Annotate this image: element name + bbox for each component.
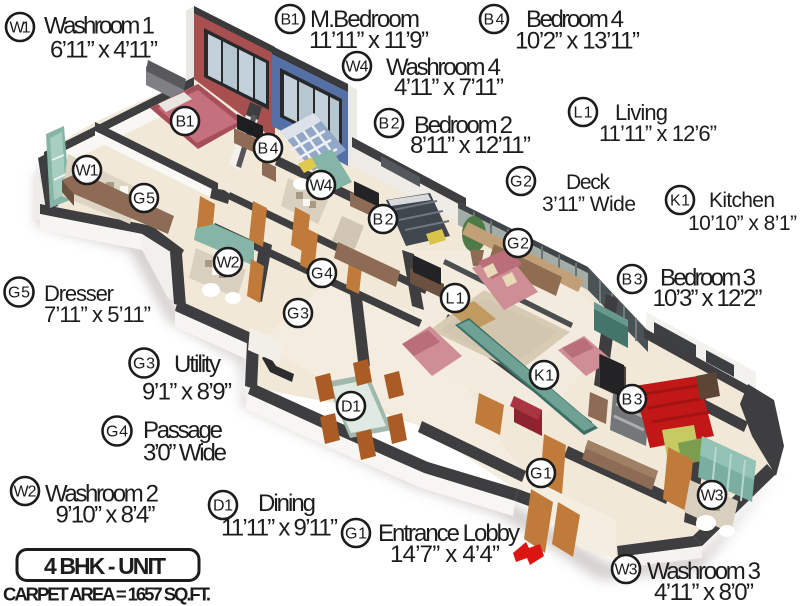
svg-text:G1: G1 <box>530 466 552 483</box>
svg-text:W2: W2 <box>217 255 240 272</box>
svg-text:6’11” x 4’11”: 6’11” x 4’11” <box>50 37 158 64</box>
svg-text:B2: B2 <box>379 116 400 133</box>
svg-text:D1: D1 <box>341 399 361 416</box>
svg-text:W4: W4 <box>346 59 369 76</box>
svg-text:10’10” x 8’1”: 10’10” x 8’1” <box>688 212 797 235</box>
svg-text:W4: W4 <box>310 178 333 195</box>
svg-text:3’0” Wide: 3’0” Wide <box>143 440 227 467</box>
svg-text:B4: B4 <box>258 141 279 158</box>
svg-text:W1: W1 <box>10 20 31 37</box>
svg-text:4 BHK - UNIT: 4 BHK - UNIT <box>44 553 166 579</box>
svg-text:W1: W1 <box>76 163 99 180</box>
svg-text:G4: G4 <box>106 424 128 441</box>
svg-text:B1: B1 <box>176 114 195 131</box>
svg-text:9’1” x 8’9”: 9’1” x 8’9” <box>142 379 232 406</box>
svg-text:10’3” x 12’2”: 10’3” x 12’2” <box>653 285 763 312</box>
svg-text:CARPET AREA = 1657 SQ.FT.: CARPET AREA = 1657 SQ.FT. <box>3 584 211 605</box>
svg-text:G5: G5 <box>133 191 155 208</box>
svg-text:G5: G5 <box>8 285 30 302</box>
svg-text:Kitchen: Kitchen <box>709 189 775 212</box>
svg-text:G3: G3 <box>287 306 309 323</box>
svg-text:G2: G2 <box>507 236 529 253</box>
svg-text:W2: W2 <box>14 484 37 501</box>
svg-text:G4: G4 <box>311 266 333 283</box>
svg-text:B4: B4 <box>484 12 505 29</box>
svg-text:9’10” x 8’4”: 9’10” x 8’4” <box>56 502 156 529</box>
svg-text:Deck: Deck <box>566 171 611 194</box>
svg-text:K1: K1 <box>534 368 554 385</box>
svg-text:Washroom 1: Washroom 1 <box>44 13 155 40</box>
svg-text:11’11” x 9’11”: 11’11” x 9’11” <box>221 515 338 542</box>
svg-text:L1: L1 <box>446 291 465 308</box>
svg-text:7’11” x 5’11”: 7’11” x 5’11” <box>44 302 151 327</box>
svg-text:3’11” Wide: 3’11” Wide <box>542 193 636 216</box>
svg-text:K1: K1 <box>670 193 690 210</box>
svg-text:14’7” x 4’4”: 14’7” x 4’4” <box>390 541 500 568</box>
svg-text:11’11” x 12’6”: 11’11” x 12’6” <box>599 121 717 146</box>
svg-text:W3: W3 <box>615 562 638 579</box>
svg-text:4’11” x 8’0”: 4’11” x 8’0” <box>654 579 754 606</box>
svg-text:11’11” x 11’9”: 11’11” x 11’9” <box>309 27 429 54</box>
svg-text:Utility: Utility <box>174 351 221 378</box>
svg-text:4’11” x 7’11”: 4’11” x 7’11” <box>394 74 504 101</box>
svg-text:10’2” x 13’11”: 10’2” x 13’11” <box>515 28 640 55</box>
svg-text:G3: G3 <box>133 356 155 373</box>
svg-text:B1: B1 <box>281 12 300 29</box>
svg-text:Dining: Dining <box>258 490 316 517</box>
svg-text:L1: L1 <box>574 105 593 122</box>
svg-text:B3: B3 <box>622 392 643 409</box>
svg-text:W3: W3 <box>701 488 724 505</box>
svg-text:B2: B2 <box>373 212 394 229</box>
svg-text:8’11” x 12’11”: 8’11” x 12’11” <box>410 132 531 159</box>
svg-text:G1: G1 <box>345 526 367 543</box>
svg-text:G2: G2 <box>510 174 532 191</box>
svg-text:B3: B3 <box>622 272 643 289</box>
svg-text:D1: D1 <box>213 498 233 515</box>
